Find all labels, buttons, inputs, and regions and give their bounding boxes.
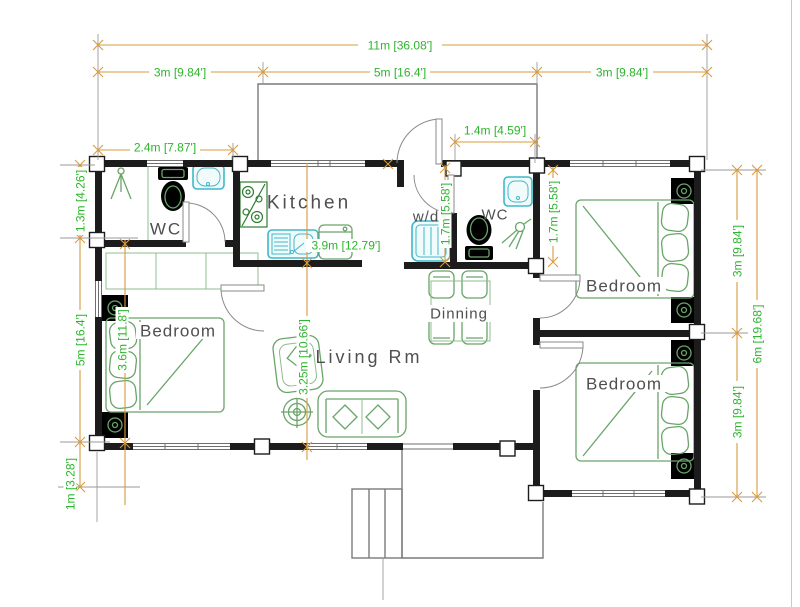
room-label-dining: Dinning bbox=[430, 306, 488, 323]
dim-entry-width: 1.4m [4.59'] bbox=[464, 124, 526, 138]
dim-utility-right-depth: 1.7m [5.58'] bbox=[547, 181, 561, 243]
window bbox=[307, 443, 367, 450]
back-porch bbox=[402, 450, 543, 558]
nightstand bbox=[671, 297, 697, 323]
room-label-bedroom-bottom-right: Bedroom bbox=[586, 375, 662, 394]
dim-right-total: 6m [19.68'] bbox=[751, 305, 765, 364]
door-bedroom-top-right bbox=[540, 275, 580, 318]
dim-top-center: 5m [16.4'] bbox=[374, 66, 426, 80]
entry-door bbox=[397, 119, 442, 164]
window bbox=[572, 490, 665, 497]
nightstand bbox=[671, 453, 697, 479]
window bbox=[95, 281, 102, 317]
window bbox=[147, 160, 183, 167]
floor-plan-page: 11m [36.08'] 3m [9.84'] 5m [16.4'] 3m [9… bbox=[0, 0, 800, 607]
dim-living-depth: 3.25m [10.66'] bbox=[297, 319, 311, 395]
shower-sprayer bbox=[502, 219, 531, 249]
dim-wc-width: 2.4m [7.87'] bbox=[134, 141, 196, 155]
dim-bedroom-left-width: 3.6m [11.8'] bbox=[116, 309, 130, 370]
dimension-lines bbox=[75, 40, 762, 505]
dim-left-top: 1.3m [4.26'] bbox=[74, 170, 88, 232]
dining-chair bbox=[462, 271, 487, 298]
dim-left-mid: 5m [16.4'] bbox=[74, 314, 88, 366]
sink-right bbox=[504, 177, 532, 206]
room-label-wc-left: WC bbox=[150, 220, 182, 239]
room-label-bedroom-top-right: Bedroom bbox=[586, 277, 662, 296]
room-label-laundry: w/d bbox=[412, 209, 439, 226]
room-label-kitchen: Kitchen bbox=[267, 193, 351, 214]
dim-left-bottom: 1m [3.28'] bbox=[64, 458, 78, 510]
room-label-bedroom-left: Bedroom bbox=[140, 322, 216, 341]
stove bbox=[240, 182, 267, 227]
room-label-living: Living Rm bbox=[315, 347, 422, 367]
window bbox=[271, 160, 365, 167]
door-wc-left bbox=[183, 202, 225, 242]
nightstand bbox=[102, 412, 128, 438]
dim-kitchen-depth: 3.9m [12.79'] bbox=[312, 239, 381, 253]
dim-right-bottom: 3m [9.84'] bbox=[731, 386, 745, 438]
sofa bbox=[318, 391, 406, 437]
window bbox=[570, 160, 670, 167]
door-bedroom-left bbox=[221, 285, 264, 331]
nightstand bbox=[671, 340, 697, 366]
room-label-wc-right: WC bbox=[482, 207, 509, 224]
extension-lines bbox=[58, 34, 766, 600]
floor-plan: 11m [36.08'] 3m [9.84'] 5m [16.4'] 3m [9… bbox=[0, 0, 800, 607]
window bbox=[133, 443, 230, 450]
dim-utility-left-depth: 1.7m [5.58'] bbox=[439, 183, 453, 245]
dining-chair bbox=[429, 271, 454, 298]
dim-right-top: 3m [9.84'] bbox=[731, 225, 745, 277]
sink-left bbox=[193, 165, 224, 189]
dim-top-left: 3m [9.84'] bbox=[154, 66, 206, 80]
shower-left bbox=[111, 168, 131, 199]
steps bbox=[352, 489, 402, 558]
patio-door bbox=[403, 443, 453, 450]
ceiling-fan bbox=[281, 396, 313, 428]
dim-top-total: 11m [36.08'] bbox=[368, 39, 433, 53]
dim-top-right: 3m [9.84'] bbox=[596, 66, 648, 80]
